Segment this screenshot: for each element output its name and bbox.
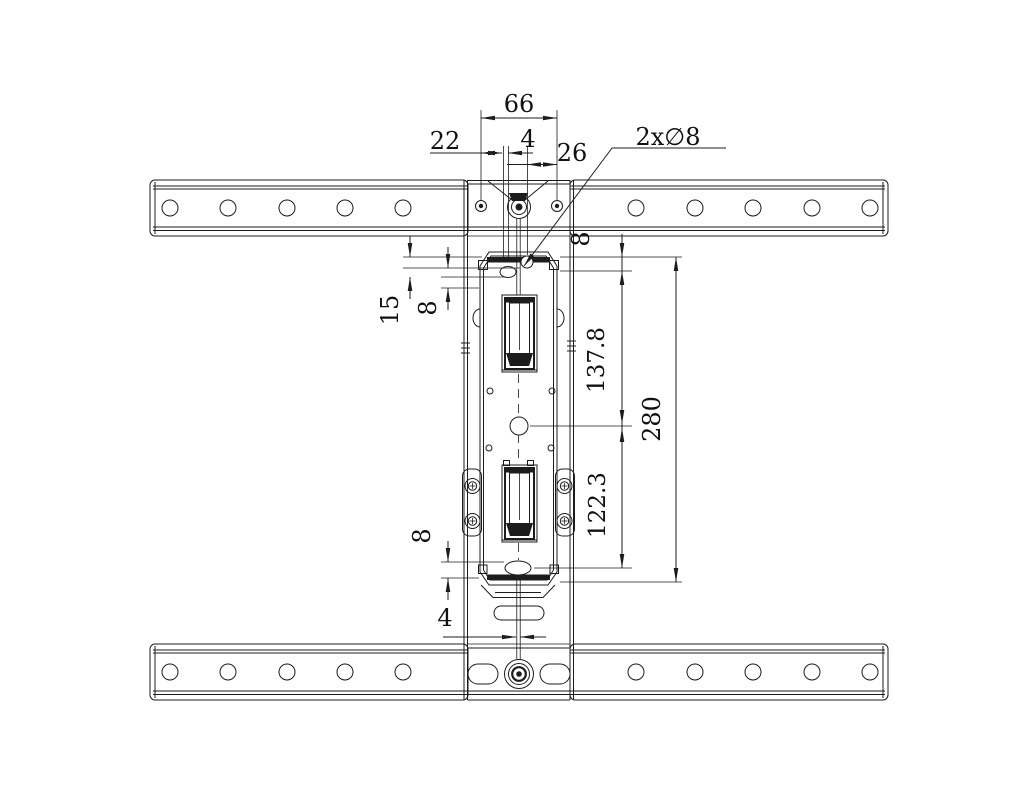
- label-8-right: 8: [567, 231, 595, 246]
- rail-hole: [395, 200, 411, 216]
- dim-8-bottom: [446, 541, 451, 600]
- rail-outline: [150, 644, 468, 700]
- label-280: 280: [638, 396, 666, 442]
- label-4-bottom: 4: [437, 604, 452, 632]
- rail-outline: [570, 644, 888, 700]
- knob-wing-left: [468, 664, 498, 684]
- rail-hole: [220, 200, 236, 216]
- label-22: 22: [430, 127, 461, 155]
- bottom-skirt: [481, 585, 555, 598]
- center-hole: [510, 417, 528, 435]
- dim-66: [481, 110, 557, 201]
- dim-right-stack: [620, 234, 625, 568]
- rail-hole: [862, 200, 878, 216]
- dim-280: [674, 257, 679, 582]
- bottom-oblong-hole: [505, 561, 531, 575]
- top-rail-right: [570, 180, 888, 236]
- label-2x-dia8: 2x∅8: [636, 123, 701, 151]
- rail-hole: [337, 200, 353, 216]
- label-4-top: 4: [520, 125, 535, 153]
- label-8-bottom: 8: [408, 528, 436, 543]
- upper-slot: [502, 295, 537, 372]
- technical-drawing-canvas: 66 22 4 26 2x∅8 15 8 8 137.8 280 122.3 8…: [0, 0, 1013, 810]
- rail-hole: [628, 200, 644, 216]
- locking-knob: [468, 660, 570, 689]
- leader-2x-dia8: [524, 148, 726, 266]
- label-15: 15: [376, 295, 404, 326]
- plate-top-band: [487, 257, 550, 263]
- bracket-dimension-drawing: 66 22 4 26 2x∅8 15 8 8 137.8 280 122.3 8…: [0, 0, 1013, 810]
- clamp-left: [463, 469, 482, 536]
- edge-notch: [557, 309, 564, 327]
- rail-hole: [862, 664, 878, 680]
- rail-hole: [337, 664, 353, 680]
- top-rail-left: [150, 180, 468, 236]
- dim-15: [408, 236, 413, 299]
- dim-8-left: [446, 247, 451, 310]
- rivet-left: [476, 201, 487, 212]
- dimension-labels: 66 22 4 26 2x∅8 15 8 8 137.8 280 122.3 8…: [376, 90, 700, 632]
- bottom-rail-left: [150, 644, 468, 700]
- clamp-right: [556, 469, 575, 536]
- rail-hole: [687, 200, 703, 216]
- label-137-8: 137.8: [584, 327, 610, 393]
- label-66: 66: [504, 90, 535, 118]
- rail-hole: [279, 200, 295, 216]
- knob-wing-right: [540, 664, 570, 684]
- lower-slot: [502, 461, 537, 543]
- bottom-rail-right: [570, 644, 888, 700]
- rail-hole: [628, 664, 644, 680]
- edge-notch: [473, 309, 480, 327]
- rail-hole: [395, 664, 411, 680]
- rail-hole: [804, 200, 820, 216]
- dim-4-bottom: [443, 635, 546, 640]
- lower-oval-slot: [494, 606, 544, 620]
- rivet-right: [552, 201, 563, 212]
- rail-hole: [745, 664, 761, 680]
- label-122-3: 122.3: [585, 472, 611, 538]
- hook-slot-lines: [504, 146, 528, 260]
- rail-hole: [745, 200, 761, 216]
- label-8-left: 8: [414, 300, 442, 315]
- label-26: 26: [557, 139, 588, 167]
- rail-hole: [687, 664, 703, 680]
- rail-hole: [162, 200, 178, 216]
- rail-outline: [570, 180, 888, 236]
- rail-hole: [220, 664, 236, 680]
- rail-hole: [804, 664, 820, 680]
- dim-26: [507, 162, 557, 167]
- rail-outline: [150, 180, 468, 236]
- rail-hole: [279, 664, 295, 680]
- rail-hole: [162, 664, 178, 680]
